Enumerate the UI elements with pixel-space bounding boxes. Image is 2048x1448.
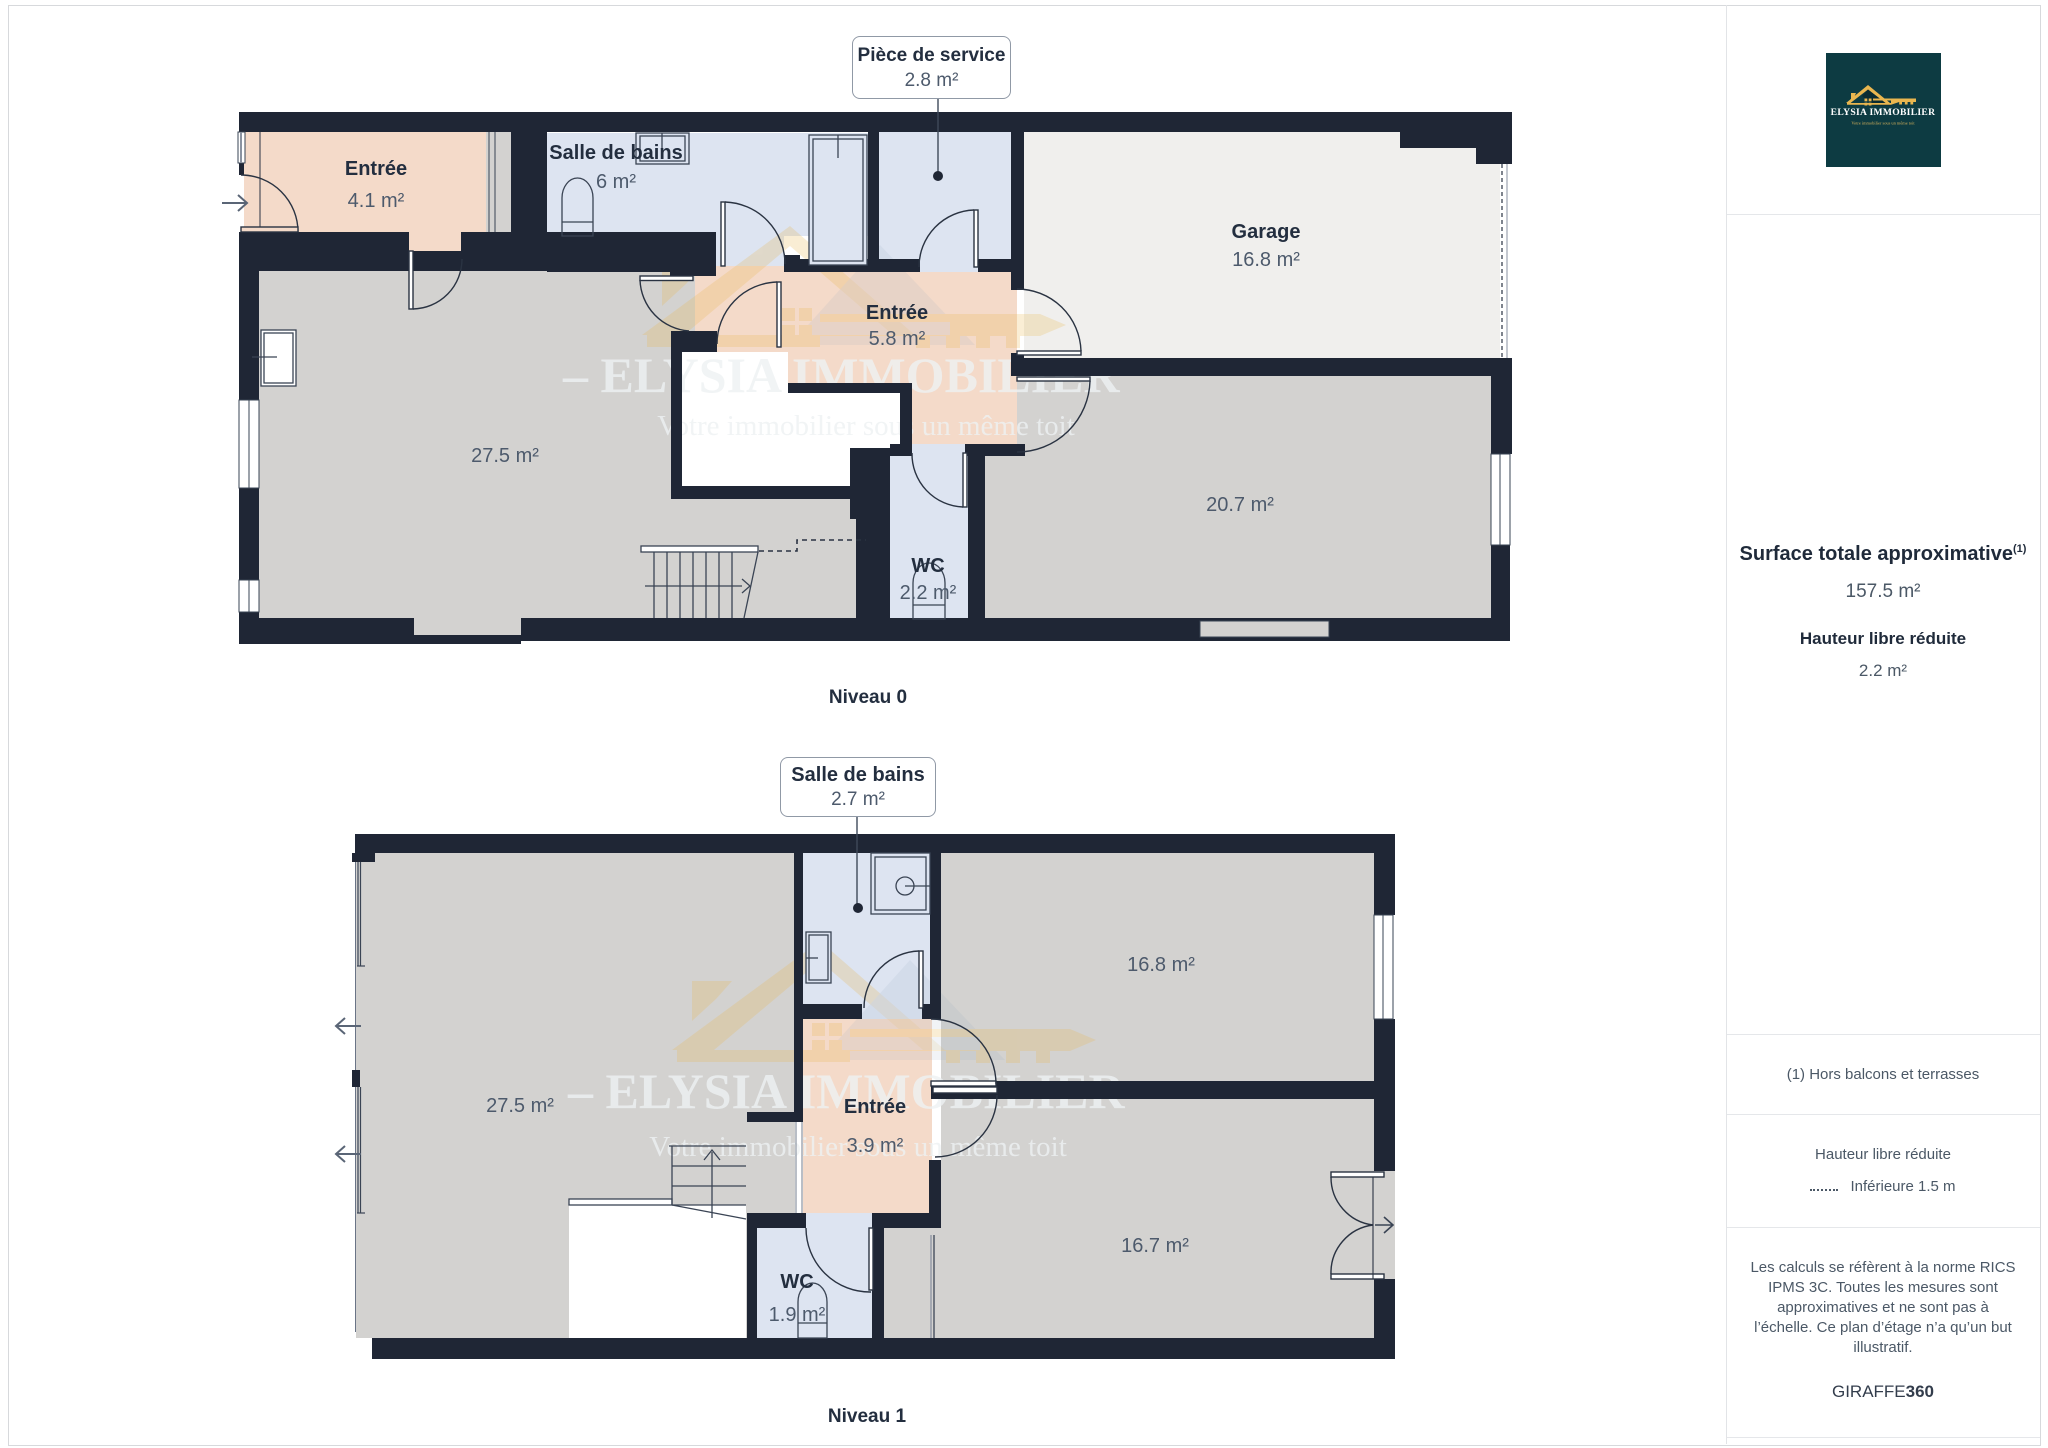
svg-text:6 m²: 6 m² xyxy=(596,171,636,193)
svg-text:Garage: Garage xyxy=(1232,221,1301,243)
svg-text:Entrée: Entrée xyxy=(345,158,407,180)
svg-text:16.8 m²: 16.8 m² xyxy=(1127,954,1195,976)
svg-text:ELYSIA IMMOBILIER: ELYSIA IMMOBILIER xyxy=(1831,107,1936,118)
svg-text:27.5 m²: 27.5 m² xyxy=(471,445,539,467)
svg-text:20.7 m²: 20.7 m² xyxy=(1206,494,1274,516)
svg-text:3.9 m²: 3.9 m² xyxy=(847,1135,904,1157)
svg-text:Votre immobilier sous un même: Votre immobilier sous un même toit xyxy=(657,410,1075,442)
svg-text:Niveau 0: Niveau 0 xyxy=(829,687,907,708)
svg-text:27.5 m²: 27.5 m² xyxy=(486,1095,554,1117)
svg-text:Salle de bains: Salle de bains xyxy=(549,142,682,164)
svg-text:2.2 m²: 2.2 m² xyxy=(900,582,957,604)
svg-text:16.8 m²: 16.8 m² xyxy=(1232,249,1300,271)
svg-text:Entrée: Entrée xyxy=(844,1096,906,1118)
svg-text:WC: WC xyxy=(911,555,944,577)
svg-text:5.8 m²: 5.8 m² xyxy=(869,328,926,350)
svg-text:Entrée: Entrée xyxy=(866,302,928,324)
svg-text:Niveau 1: Niveau 1 xyxy=(828,1406,907,1427)
svg-text:Votre immobilier sous un même: Votre immobilier sous un même toit xyxy=(1851,121,1915,126)
svg-text:1.9 m²: 1.9 m² xyxy=(769,1304,826,1326)
svg-text:4.1 m²: 4.1 m² xyxy=(348,190,405,212)
svg-text:16.7 m²: 16.7 m² xyxy=(1121,1235,1189,1257)
svg-text:WC: WC xyxy=(780,1271,813,1293)
